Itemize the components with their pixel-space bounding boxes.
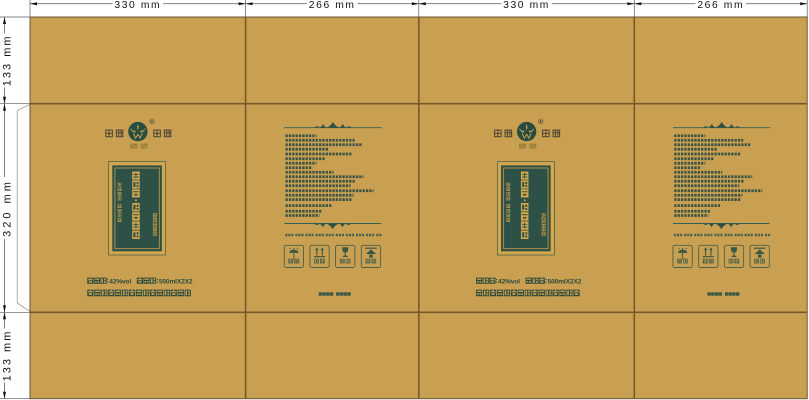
svg-text:320 mm: 320 mm (1, 179, 13, 237)
svg-text:266 mm: 266 mm (697, 0, 744, 11)
svg-text:330 mm: 330 mm (114, 0, 161, 11)
svg-text:42%vol: 42%vol (498, 278, 520, 285)
svg-text:330 mm: 330 mm (503, 0, 550, 11)
svg-text:133 mm: 133 mm (1, 330, 13, 382)
svg-text:500mlX2X2: 500mlX2X2 (548, 278, 582, 285)
svg-text:266 mm: 266 mm (309, 0, 356, 11)
svg-text:500mlX2X2: 500mlX2X2 (159, 278, 193, 285)
svg-text:133 mm: 133 mm (1, 34, 13, 86)
svg-text:42%vol: 42%vol (109, 278, 131, 285)
